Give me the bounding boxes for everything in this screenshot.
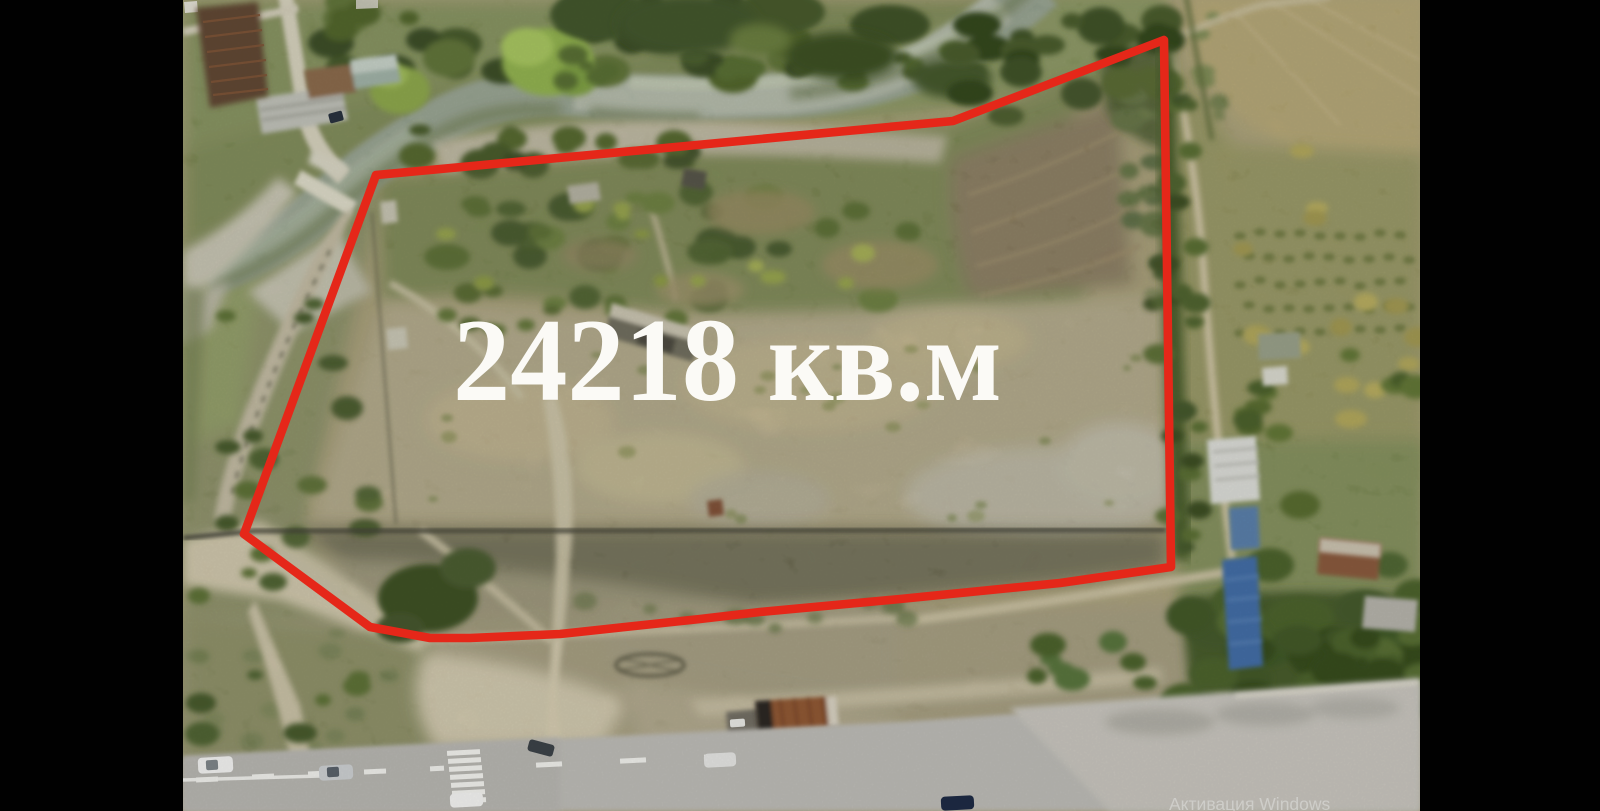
svg-text:24218 кв.м: 24218 кв.м [453, 294, 1002, 426]
svg-text:Активация Windows: Активация Windows [1169, 794, 1331, 811]
